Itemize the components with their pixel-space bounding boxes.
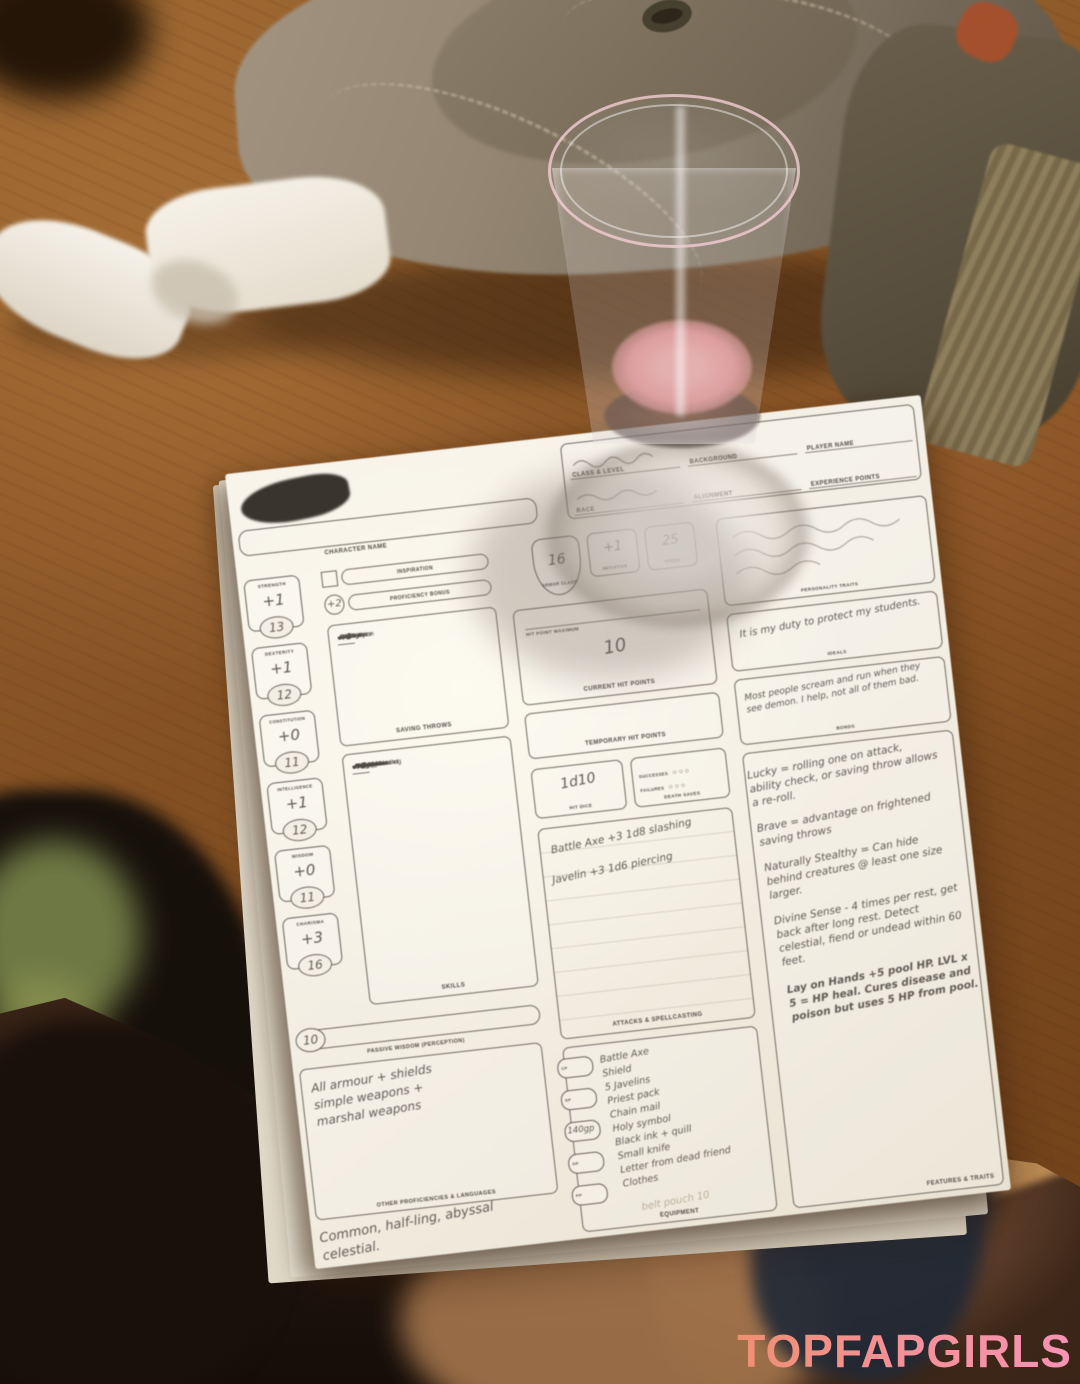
field-label: PLAYER NAME [807,441,855,452]
saving-throws-box: ○+1Strength ○+1Dexterity ○+0Constitution… [327,606,510,746]
ability-box-intelligence: INTELLIGENCE +1 12 [266,777,328,835]
death-saves-box: SUCCESSES ○ ○ ○ FAILURES ○ ○ ○ DEATH SAV… [630,747,731,808]
ability-box-constitution: CONSTITUTION +0 11 [259,710,321,768]
skills-label: SKILLS [370,974,538,999]
ability-box-strength: STRENGTH +1 13 [243,574,305,632]
proficiency-bonus-value: +2 [323,594,345,616]
hit-dice-value: 1d10 [532,764,623,798]
ability-score: 12 [266,682,302,708]
saving-throws-label: SAVING THROWS [340,716,508,741]
features-notes: Lucky = rolling one on attack, ability c… [746,734,982,1025]
ability-box-wisdom: WISDOM +0 11 [274,845,336,903]
temp-hp-label: TEMPORARY HIT POINTS [529,726,722,754]
coin-label: GP [572,1161,579,1167]
coin-note: 140gp [567,1124,595,1137]
ability-modifier: +1 [246,589,302,613]
ability-modifier: +1 [269,791,325,815]
coin-slot-sp: SP [560,1087,598,1111]
glass-shadow [470,470,750,680]
ability-score: 13 [259,614,295,640]
glass-rim-inner [560,104,788,238]
skill-row: ○+0Survival [351,761,352,774]
coin-slot-gp: GP [567,1151,605,1175]
hit-dice-label: HIT DICE [536,799,626,814]
ability-box-charisma: CHARISMA +3 16 [282,912,344,970]
coin-label: CP [561,1065,568,1071]
coin-slot-cp: CP [556,1055,594,1079]
failures-label: FAILURES [640,785,664,793]
hit-dice-box: 1d10 HIT DICE [530,759,627,819]
ability-modifier: +3 [284,926,340,950]
features-box: Lucky = rolling one on attack, ability c… [742,729,1004,1208]
coin-label: PP [576,1192,583,1198]
equipment-items: Battle Axe Shield 5 Javelins Priest pack… [599,1027,775,1208]
ability-score: 16 [297,952,333,978]
proficiencies-text: All armour + shields simple weapons + ma… [310,1061,439,1131]
other-proficiencies-box: All armour + shields simple weapons + ma… [299,1042,559,1221]
ability-modifier: +0 [261,724,317,748]
ability-score: 11 [289,885,325,911]
proficiency-label: PROFICIENCY BONUS [349,585,491,607]
ability-score: 11 [274,750,310,776]
features-label: FEATURES & TRAITS [926,1174,994,1188]
ability-modifier: +0 [277,859,333,883]
inspiration-checkbox [321,570,339,588]
inspiration-label: INSPIRATION [342,559,488,581]
failure-pips: ○ ○ ○ [668,782,685,791]
saving-throw-row: ●+5Charisma [337,632,338,645]
skills-box: ○+1Acrobatics ○+0Animal Handling ●+3Arca… [341,736,538,1006]
photo-scene: CHARACTER NAME CLASS & LEVEL BACKGROUND … [0,0,1080,1384]
coin-label: SP [565,1097,572,1103]
attacks-box: Battle Axe +3 1d8 slashing Javelin +3 1d… [537,807,756,1040]
ability-box-dexterity: DEXTERITY +1 12 [251,642,313,700]
ability-modifier: +1 [253,656,309,680]
bonds-box: Most people scream and run when they see… [734,656,952,746]
coin-slot-ep: 140gp [564,1119,602,1143]
ability-score: 12 [282,817,318,843]
equipment-box: CP SP 140gp GP PP Battle Axe Shield 5 Ja… [562,1026,778,1233]
watermark-text: TOPFAPGIRLS [737,1324,1072,1378]
coin-slot-pp: PP [571,1183,609,1207]
